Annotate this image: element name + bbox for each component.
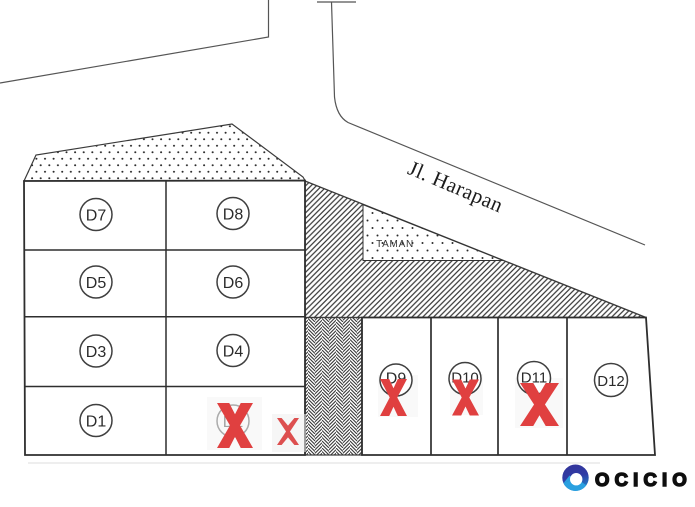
svg-text:D8: D8 [223, 206, 244, 223]
svg-text:D12: D12 [597, 373, 625, 390]
svg-text:TAMAN: TAMAN [376, 239, 414, 250]
svg-text:D7: D7 [86, 207, 107, 224]
svg-text:D5: D5 [86, 275, 107, 292]
svg-text:D1: D1 [86, 413, 107, 430]
svg-text:OCICIO: OCICIO [595, 469, 692, 490]
svg-text:D6: D6 [223, 275, 244, 292]
svg-text:D3: D3 [86, 344, 107, 361]
svg-text:D4: D4 [223, 343, 244, 360]
